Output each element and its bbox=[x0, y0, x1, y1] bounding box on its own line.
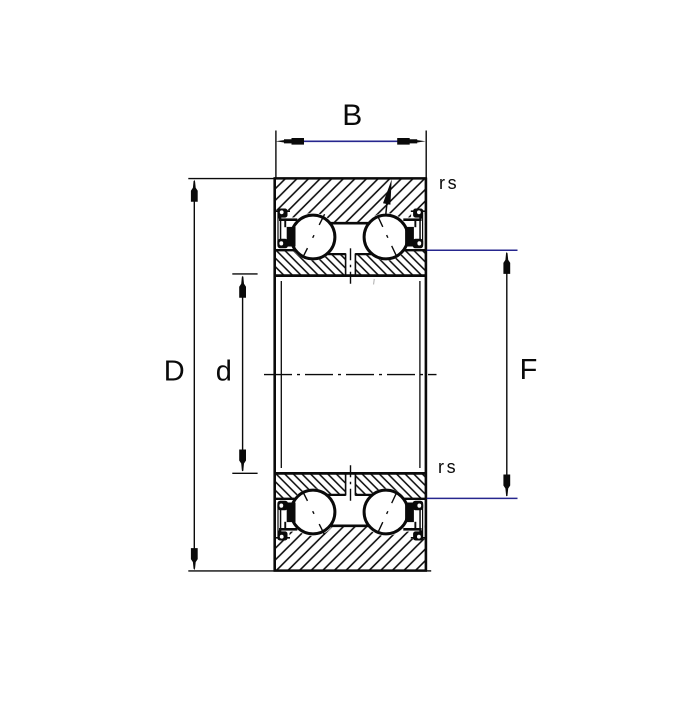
svg-text:rs: rs bbox=[439, 173, 459, 193]
svg-text:F: F bbox=[520, 354, 538, 386]
svg-text:B: B bbox=[342, 99, 362, 132]
svg-text:d: d bbox=[216, 355, 232, 387]
svg-text:D: D bbox=[164, 355, 185, 387]
svg-text:rs: rs bbox=[438, 457, 458, 477]
